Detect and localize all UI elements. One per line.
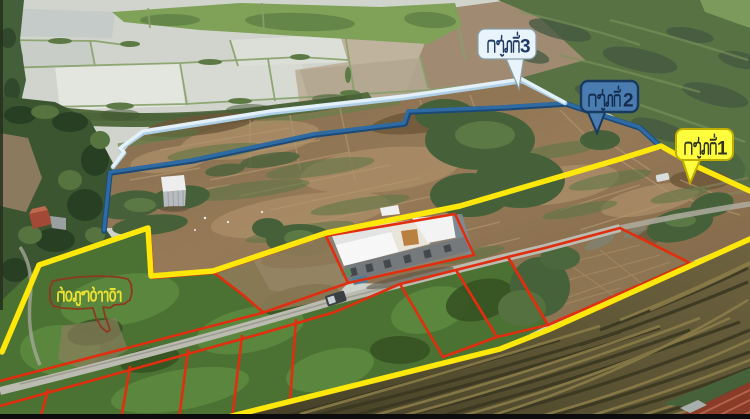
svg-text:1: 1 [717,139,728,160]
svg-text:2: 2 [623,91,634,112]
svg-text:3: 3 [520,37,531,58]
